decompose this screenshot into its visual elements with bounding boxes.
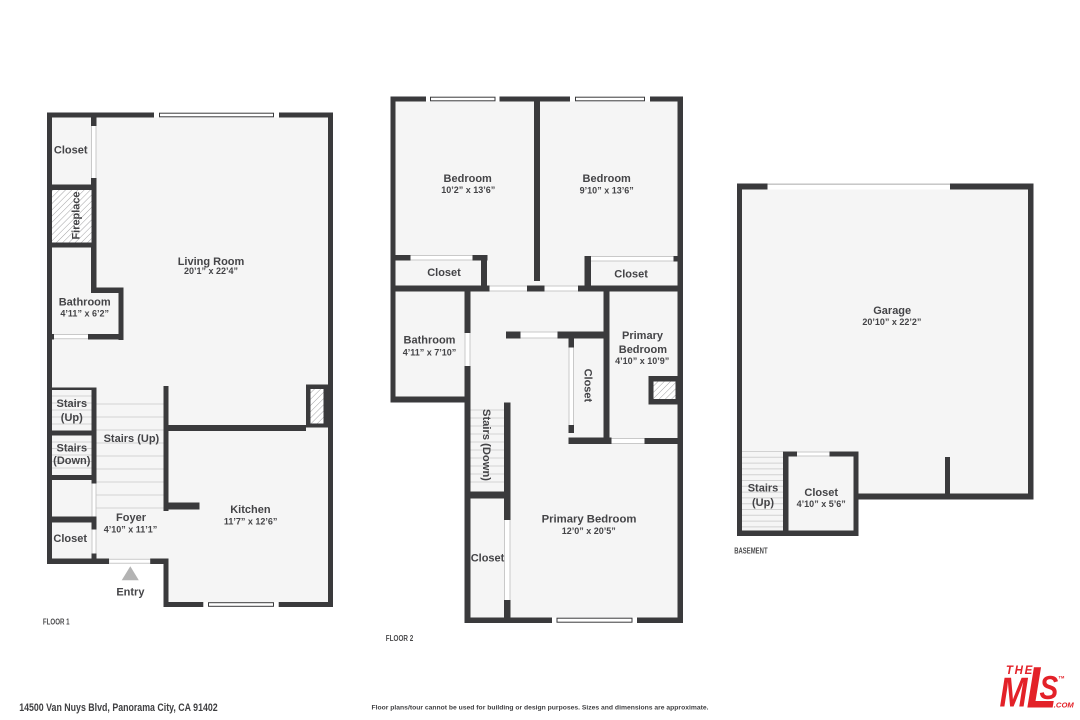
svg-text:FLOOR 2: FLOOR 2 xyxy=(386,634,414,643)
svg-text:Closet: Closet xyxy=(54,145,88,157)
svg-text:Closet: Closet xyxy=(471,553,505,565)
svg-text:(Up): (Up) xyxy=(61,412,83,424)
svg-text:Stairs: Stairs xyxy=(57,398,88,410)
svg-text:TM: TM xyxy=(1059,675,1065,680)
svg-text:Bedroom: Bedroom xyxy=(619,344,668,356)
svg-text:Bedroom: Bedroom xyxy=(444,173,493,185)
svg-text:Primary: Primary xyxy=(622,330,664,342)
svg-text:Stairs (Down): Stairs (Down) xyxy=(480,409,492,481)
svg-text:Stairs: Stairs xyxy=(57,442,88,454)
svg-text:(Down): (Down) xyxy=(53,455,91,467)
svg-text:4’11” x 7’10”: 4’11” x 7’10” xyxy=(403,347,457,357)
svg-text:Bathroom: Bathroom xyxy=(404,334,456,346)
svg-text:20’10” x 22’2”: 20’10” x 22’2” xyxy=(862,317,921,327)
svg-text:14500 Van Nuys Blvd, Panorama: 14500 Van Nuys Blvd, Panorama City, CA 9… xyxy=(19,702,218,714)
svg-text:Primary Bedroom: Primary Bedroom xyxy=(542,513,637,525)
svg-text:Garage: Garage xyxy=(873,305,911,317)
svg-text:Bathroom: Bathroom xyxy=(59,297,111,309)
svg-text:Entry: Entry xyxy=(116,587,145,599)
svg-text:(Up): (Up) xyxy=(752,497,774,509)
svg-text:Bedroom: Bedroom xyxy=(583,173,632,185)
svg-text:12’0” x 20’5”: 12’0” x 20’5” xyxy=(562,526,616,536)
svg-text:M: M xyxy=(1000,670,1029,716)
svg-text:Stairs: Stairs xyxy=(748,483,779,495)
svg-text:Stairs (Up): Stairs (Up) xyxy=(104,433,160,445)
svg-text:.COM: .COM xyxy=(1054,701,1075,710)
svg-text:Floor plans/tour cannot be use: Floor plans/tour cannot be used for buil… xyxy=(372,705,709,712)
svg-text:20’1” x 22’4”: 20’1” x 22’4” xyxy=(184,266,238,276)
svg-text:Fireplace: Fireplace xyxy=(70,192,82,240)
svg-text:11’7” x 12’6”: 11’7” x 12’6” xyxy=(224,517,278,527)
svg-text:4’11” x 6’2”: 4’11” x 6’2” xyxy=(60,309,109,319)
svg-text:4’10” x 5’6”: 4’10” x 5’6” xyxy=(797,499,846,509)
svg-text:Closet: Closet xyxy=(53,533,87,545)
svg-text:Closet: Closet xyxy=(804,487,838,499)
svg-text:Closet: Closet xyxy=(614,268,648,280)
svg-text:9’10” x 13’6”: 9’10” x 13’6” xyxy=(580,186,634,196)
svg-text:Kitchen: Kitchen xyxy=(230,504,271,516)
svg-text:Closet: Closet xyxy=(427,267,461,279)
svg-text:BASEMENT: BASEMENT xyxy=(734,546,767,555)
svg-text:FLOOR 1: FLOOR 1 xyxy=(43,618,70,627)
svg-text:Closet: Closet xyxy=(582,369,594,403)
svg-text:4’10” x 11’1”: 4’10” x 11’1” xyxy=(104,525,158,535)
svg-text:10’2” x 13’6”: 10’2” x 13’6” xyxy=(441,185,495,195)
svg-text:4’10” x 10’9”: 4’10” x 10’9” xyxy=(615,356,669,366)
svg-text:Foyer: Foyer xyxy=(116,512,147,524)
